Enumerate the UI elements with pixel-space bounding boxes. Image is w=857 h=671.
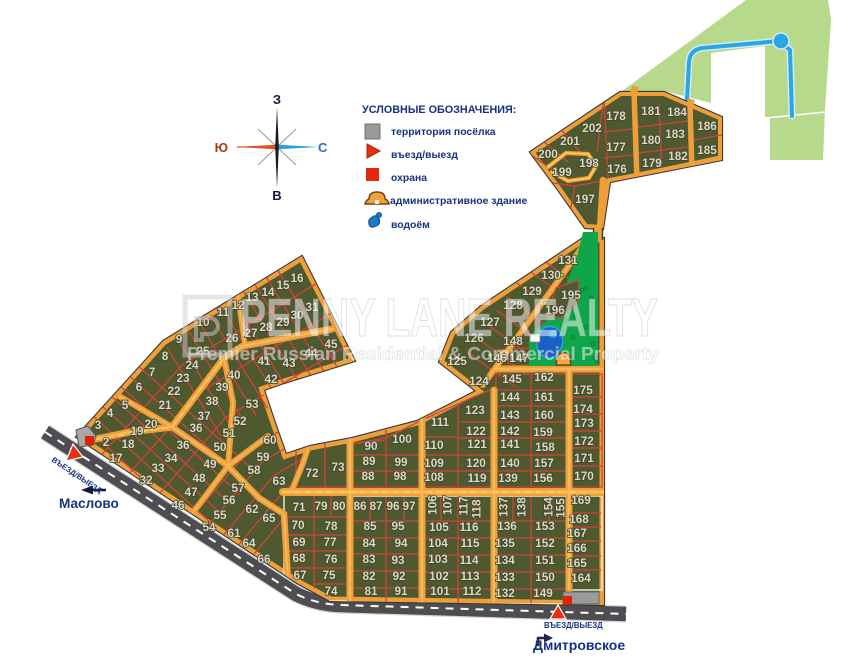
svg-text:23: 23 (176, 371, 190, 385)
svg-text:33: 33 (151, 461, 165, 475)
svg-text:164: 164 (571, 571, 591, 585)
svg-text:120: 120 (466, 456, 486, 470)
svg-text:81: 81 (364, 584, 378, 598)
svg-text:202: 202 (582, 121, 602, 135)
svg-text:156: 156 (533, 471, 553, 485)
svg-text:200: 200 (538, 147, 558, 161)
svg-text:115: 115 (460, 536, 479, 550)
svg-text:18: 18 (121, 437, 135, 451)
svg-text:102: 102 (429, 569, 449, 583)
svg-text:40: 40 (227, 368, 241, 382)
svg-text:162: 162 (534, 370, 554, 384)
svg-text:PENNY LANE REALTY: PENNY LANE REALTY (240, 288, 658, 348)
svg-text:113: 113 (460, 569, 479, 583)
svg-text:Premier Russian Residential &: Premier Russian Residential & Commercial… (187, 343, 660, 364)
svg-text:141: 141 (500, 437, 520, 451)
svg-text:152: 152 (535, 536, 555, 550)
svg-text:131: 131 (558, 253, 578, 267)
svg-text:5: 5 (122, 398, 129, 412)
svg-text:36: 36 (189, 421, 203, 435)
svg-text:74: 74 (324, 584, 338, 598)
svg-text:21: 21 (158, 398, 172, 412)
svg-text:54: 54 (202, 520, 216, 534)
svg-text:82: 82 (362, 569, 376, 583)
svg-text:140: 140 (500, 456, 520, 470)
svg-text:185: 185 (697, 143, 717, 157)
svg-text:20: 20 (144, 417, 158, 431)
svg-text:99: 99 (394, 455, 408, 469)
svg-text:167: 167 (567, 526, 587, 540)
svg-text:177: 177 (606, 140, 626, 154)
svg-text:111: 111 (431, 415, 450, 429)
svg-text:39: 39 (215, 380, 229, 394)
svg-text:172: 172 (574, 434, 594, 448)
svg-text:138: 138 (515, 497, 529, 517)
svg-text:149: 149 (533, 586, 553, 600)
svg-text:88: 88 (361, 469, 375, 483)
svg-text:34: 34 (164, 451, 178, 465)
svg-text:32: 32 (139, 473, 153, 487)
svg-text:въезд/выезд: въезд/выезд (391, 150, 458, 161)
svg-text:37: 37 (197, 409, 211, 423)
svg-text:98: 98 (393, 469, 407, 483)
svg-text:136: 136 (497, 519, 517, 533)
svg-text:170: 170 (574, 469, 594, 483)
svg-text:60: 60 (263, 433, 277, 447)
svg-text:181: 181 (641, 104, 661, 118)
svg-text:117: 117 (457, 496, 471, 515)
svg-text:49: 49 (203, 457, 217, 471)
svg-text:83: 83 (362, 552, 376, 566)
svg-text:65: 65 (262, 511, 276, 525)
svg-text:72: 72 (305, 466, 319, 480)
svg-text:55: 55 (213, 508, 227, 522)
svg-text:75: 75 (322, 568, 336, 582)
svg-text:68: 68 (292, 551, 306, 565)
svg-text:107: 107 (441, 495, 455, 515)
svg-text:183: 183 (665, 127, 685, 141)
svg-text:133: 133 (495, 570, 515, 584)
svg-text:В: В (272, 188, 281, 203)
svg-text:51: 51 (222, 426, 236, 440)
svg-text:50: 50 (213, 440, 227, 454)
svg-text:153: 153 (535, 519, 555, 533)
svg-text:201: 201 (560, 134, 580, 148)
svg-text:122: 122 (466, 424, 486, 438)
svg-text:42: 42 (264, 372, 278, 386)
svg-text:197: 197 (575, 192, 595, 206)
svg-text:103: 103 (428, 552, 448, 566)
svg-text:123: 123 (465, 403, 485, 417)
svg-text:121: 121 (467, 437, 487, 451)
svg-text:38: 38 (205, 394, 219, 408)
svg-text:142: 142 (500, 424, 520, 438)
svg-text:86: 86 (353, 499, 367, 513)
svg-text:169: 169 (571, 493, 591, 507)
svg-text:104: 104 (428, 536, 448, 550)
svg-text:145: 145 (502, 372, 522, 386)
svg-text:139: 139 (498, 471, 518, 485)
svg-text:ВЪЕЗД/ВЫЕЗД: ВЪЕЗД/ВЫЕЗД (544, 621, 603, 630)
svg-text:168: 168 (569, 512, 589, 526)
svg-text:173: 173 (574, 416, 594, 430)
svg-text:158: 158 (535, 440, 555, 454)
svg-text:161: 161 (534, 390, 554, 404)
svg-text:94: 94 (394, 536, 408, 550)
svg-text:3: 3 (95, 418, 102, 432)
svg-text:80: 80 (332, 499, 346, 513)
svg-text:58: 58 (247, 463, 261, 477)
svg-text:78: 78 (324, 519, 338, 533)
svg-text:184: 184 (667, 105, 687, 119)
svg-text:62: 62 (245, 502, 259, 516)
svg-text:171: 171 (574, 451, 594, 465)
svg-text:182: 182 (668, 149, 688, 163)
svg-text:175: 175 (573, 383, 593, 397)
svg-text:116: 116 (459, 520, 478, 534)
svg-text:46: 46 (171, 498, 185, 512)
svg-text:134: 134 (495, 553, 515, 567)
svg-text:179: 179 (642, 156, 662, 170)
svg-text:180: 180 (641, 133, 661, 147)
svg-text:143: 143 (500, 408, 520, 422)
svg-text:59: 59 (256, 450, 270, 464)
svg-text:87: 87 (369, 499, 383, 513)
svg-text:70: 70 (291, 518, 305, 532)
svg-text:119: 119 (467, 471, 486, 485)
svg-text:водоём: водоём (391, 220, 430, 231)
svg-text:2: 2 (103, 435, 110, 449)
svg-text:101: 101 (430, 584, 450, 598)
svg-text:174: 174 (573, 402, 593, 416)
svg-text:85: 85 (363, 519, 377, 533)
svg-text:159: 159 (533, 425, 553, 439)
svg-text:77: 77 (323, 535, 337, 549)
svg-text:100: 100 (392, 432, 412, 446)
svg-text:З: З (273, 92, 281, 107)
svg-text:106: 106 (426, 495, 440, 515)
svg-text:7: 7 (149, 365, 156, 379)
svg-text:47: 47 (184, 485, 198, 499)
svg-text:114: 114 (459, 553, 478, 567)
svg-text:137: 137 (497, 497, 511, 517)
svg-text:130: 130 (541, 268, 561, 282)
svg-text:157: 157 (534, 456, 554, 470)
svg-text:96: 96 (386, 499, 400, 513)
svg-text:150: 150 (535, 570, 555, 584)
svg-text:УСЛОВНЫЕ ОБОЗНАЧЕНИЯ:: УСЛОВНЫЕ ОБОЗНАЧЕНИЯ: (362, 104, 516, 116)
svg-text:186: 186 (697, 119, 717, 133)
svg-text:8: 8 (162, 349, 169, 363)
svg-text:135: 135 (495, 536, 515, 550)
svg-text:4: 4 (107, 406, 114, 420)
svg-text:73: 73 (331, 460, 345, 474)
svg-text:63: 63 (272, 474, 286, 488)
svg-text:69: 69 (292, 535, 306, 549)
svg-text:территория посёлка: территория посёлка (391, 127, 496, 138)
svg-text:90: 90 (364, 439, 378, 453)
svg-text:108: 108 (424, 470, 444, 484)
svg-text:176: 176 (607, 162, 627, 176)
svg-text:84: 84 (362, 536, 376, 550)
svg-text:199: 199 (552, 165, 572, 179)
svg-text:71: 71 (292, 500, 306, 514)
svg-text:Ю: Ю (215, 140, 228, 155)
svg-text:166: 166 (567, 541, 587, 555)
svg-text:9: 9 (176, 332, 183, 346)
svg-text:93: 93 (391, 553, 405, 567)
svg-text:16: 16 (290, 271, 304, 285)
svg-text:6: 6 (136, 380, 143, 394)
svg-text:89: 89 (362, 454, 376, 468)
svg-text:охрана: охрана (391, 173, 427, 184)
svg-text:132: 132 (495, 586, 515, 600)
svg-text:56: 56 (222, 493, 236, 507)
svg-text:Дмитровское: Дмитровское (533, 637, 625, 653)
svg-text:144: 144 (500, 390, 520, 404)
svg-text:Маслово: Маслово (59, 496, 119, 511)
svg-text:53: 53 (245, 397, 259, 411)
svg-text:155: 155 (554, 498, 568, 518)
svg-text:92: 92 (392, 569, 406, 583)
svg-text:административное здание: административное здание (390, 196, 527, 207)
svg-text:198: 198 (579, 156, 599, 170)
svg-text:22: 22 (167, 384, 181, 398)
svg-text:48: 48 (192, 471, 206, 485)
svg-text:178: 178 (606, 109, 626, 123)
svg-text:66: 66 (257, 552, 271, 566)
svg-text:165: 165 (567, 556, 587, 570)
svg-text:112: 112 (462, 584, 481, 598)
svg-text:64: 64 (242, 536, 256, 550)
svg-text:151: 151 (535, 553, 555, 567)
svg-text:109: 109 (424, 456, 444, 470)
svg-text:67: 67 (293, 568, 307, 582)
svg-text:57: 57 (231, 481, 245, 495)
svg-text:110: 110 (424, 438, 443, 452)
svg-text:118: 118 (470, 499, 484, 518)
svg-text:105: 105 (429, 520, 449, 534)
svg-text:17: 17 (109, 451, 123, 465)
svg-text:160: 160 (534, 408, 554, 422)
svg-text:61: 61 (227, 526, 241, 540)
svg-text:36: 36 (176, 438, 190, 452)
svg-text:95: 95 (391, 519, 405, 533)
svg-text:79: 79 (314, 499, 328, 513)
svg-text:19: 19 (130, 424, 144, 438)
svg-text:76: 76 (324, 552, 338, 566)
svg-text:52: 52 (233, 414, 247, 428)
svg-text:124: 124 (469, 374, 489, 388)
svg-text:97: 97 (402, 499, 416, 513)
svg-text:С: С (318, 140, 328, 155)
svg-text:91: 91 (394, 584, 408, 598)
